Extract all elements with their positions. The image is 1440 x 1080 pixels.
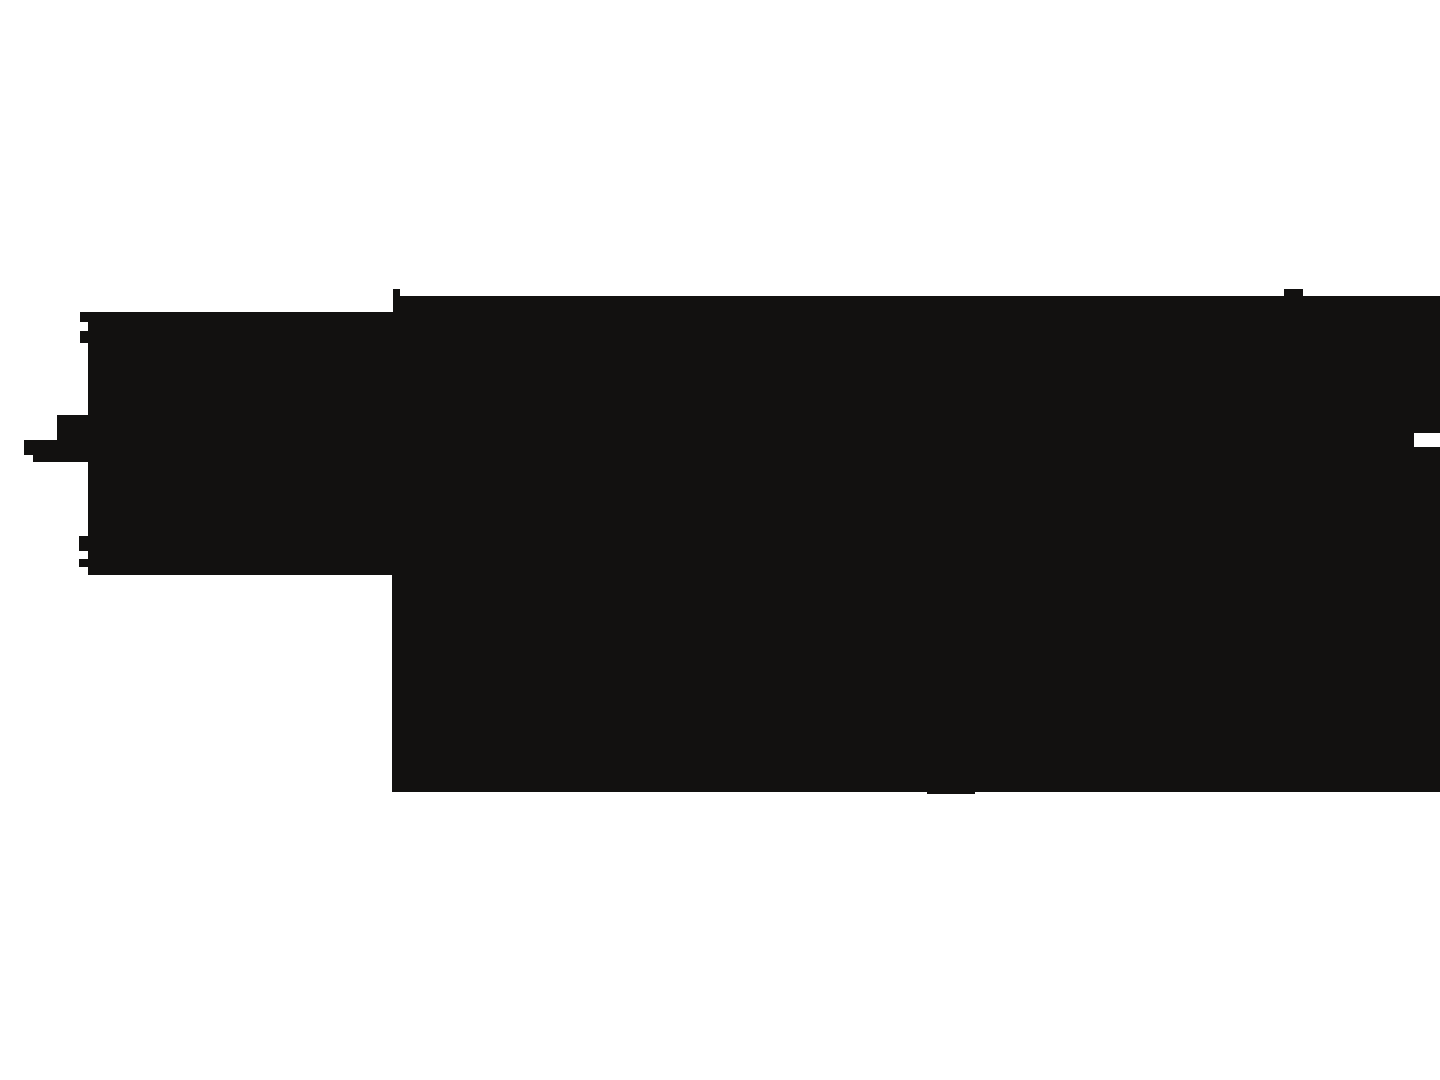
- silhouette-shape: [24, 289, 1440, 794]
- screenshot-canvas: [0, 0, 1440, 1080]
- black-silhouette: [0, 0, 1440, 1080]
